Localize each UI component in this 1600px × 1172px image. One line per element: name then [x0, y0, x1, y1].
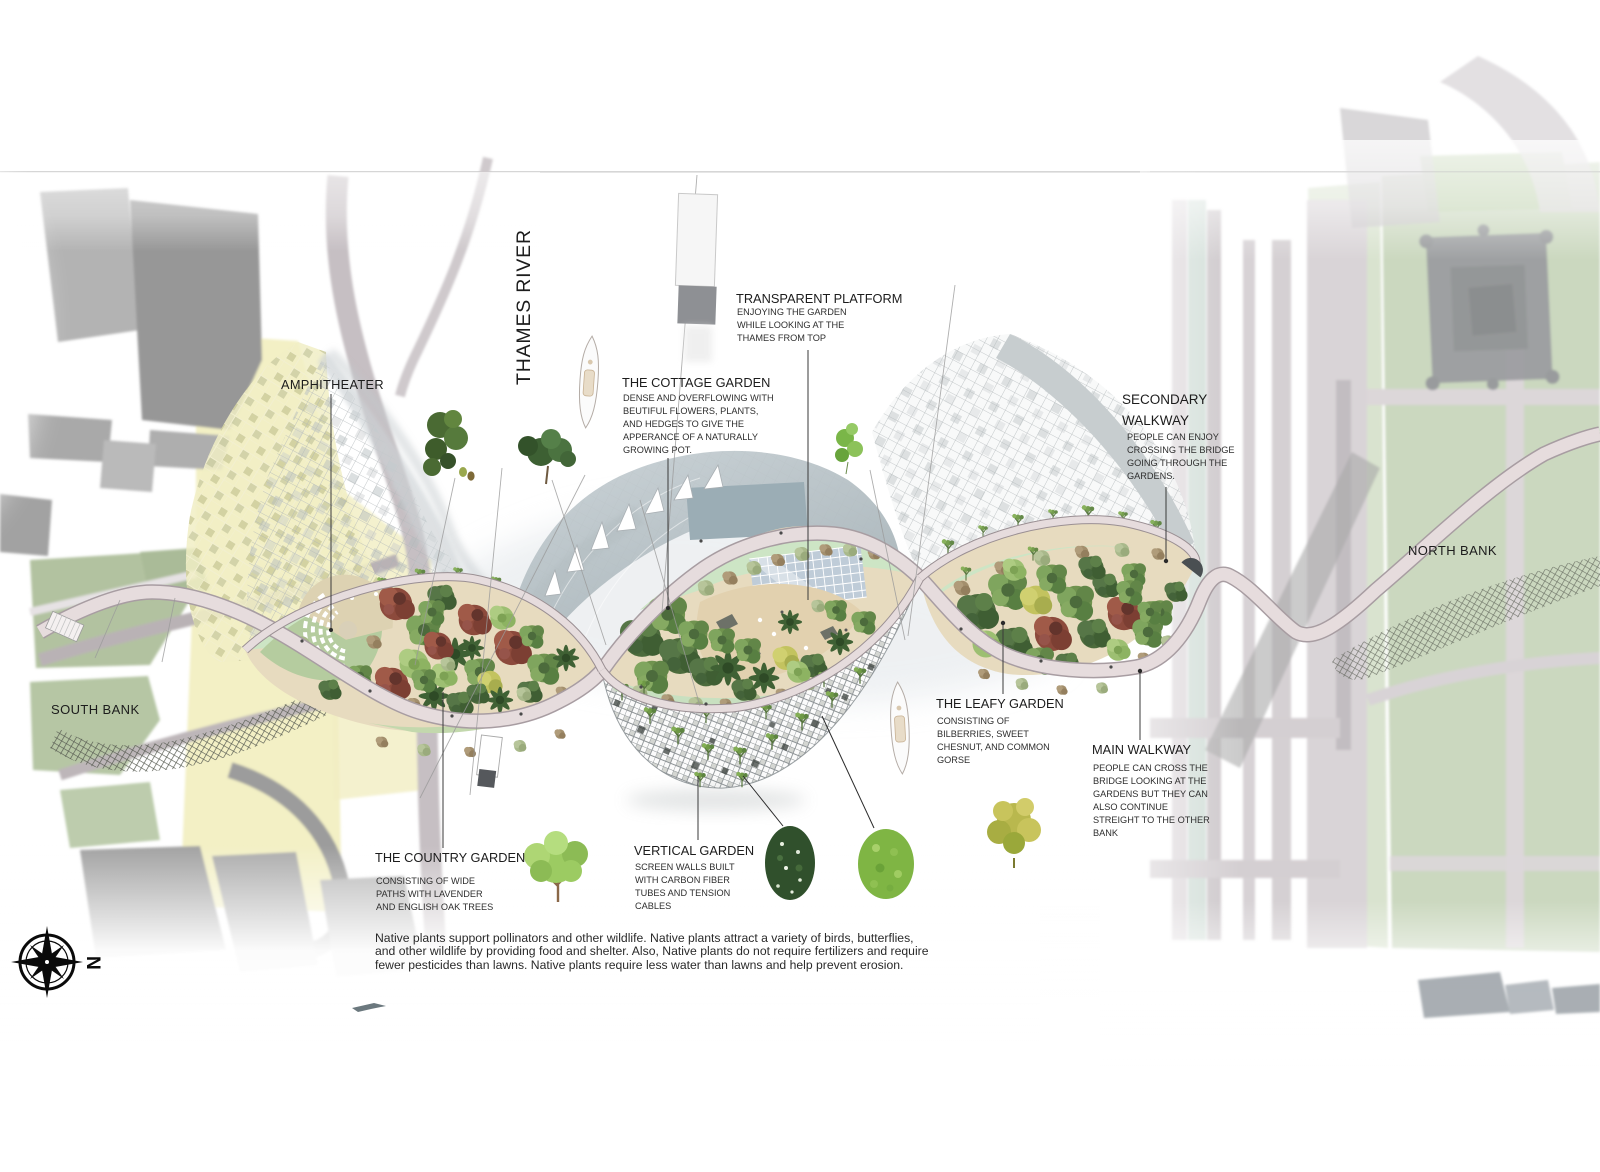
svg-text:CABLES: CABLES — [635, 901, 671, 911]
svg-text:BILBERRIES, SWEET: BILBERRIES, SWEET — [937, 729, 1029, 739]
svg-text:BANK: BANK — [1093, 828, 1119, 838]
svg-text:PEOPLE CAN CROSS THE: PEOPLE CAN CROSS THE — [1093, 763, 1208, 773]
svg-text:WHILE LOOKING AT THE: WHILE LOOKING AT THE — [737, 320, 844, 330]
svg-text:CONSISTING OF WIDE: CONSISTING OF WIDE — [376, 876, 475, 886]
svg-text:fewer pesticides than lawns. N: fewer pesticides than lawns. Native plan… — [375, 958, 903, 972]
svg-text:VERTICAL GARDEN: VERTICAL GARDEN — [634, 843, 754, 858]
svg-text:DENSE AND OVERFLOWING WITH: DENSE AND OVERFLOWING WITH — [623, 393, 774, 403]
svg-text:WITH CARBON FIBER: WITH CARBON FIBER — [635, 875, 730, 885]
svg-text:N: N — [82, 956, 103, 970]
svg-text:SCREEN WALLS BUILT: SCREEN WALLS BUILT — [635, 862, 735, 872]
svg-text:AND HEDGES TO GIVE THE: AND HEDGES TO GIVE THE — [623, 419, 744, 429]
svg-text:and other wildlife by providin: and other wildlife by providing food and… — [375, 944, 929, 958]
svg-text:THE COUNTRY GARDEN: THE COUNTRY GARDEN — [375, 850, 525, 865]
svg-text:SOUTH BANK: SOUTH BANK — [51, 702, 140, 717]
svg-text:PATHS WITH LAVENDER: PATHS WITH LAVENDER — [376, 889, 483, 899]
svg-text:GROWING POT.: GROWING POT. — [623, 445, 692, 455]
svg-text:THAMES RIVER: THAMES RIVER — [513, 229, 535, 385]
svg-text:NORTH BANK: NORTH BANK — [1408, 543, 1497, 558]
svg-text:ENJOYING THE GARDEN: ENJOYING THE GARDEN — [737, 307, 847, 317]
svg-text:THE COTTAGE GARDEN: THE COTTAGE GARDEN — [622, 375, 770, 390]
svg-text:BEUTIFUL FLOWERS, PLANTS,: BEUTIFUL FLOWERS, PLANTS, — [623, 406, 758, 416]
svg-text:THAMES FROM TOP: THAMES FROM TOP — [737, 333, 826, 343]
svg-text:GARDENS BUT THEY CAN: GARDENS BUT THEY CAN — [1093, 789, 1208, 799]
svg-text:MAIN WALKWAY: MAIN WALKWAY — [1092, 742, 1192, 757]
svg-text:GARDENS.: GARDENS. — [1127, 471, 1175, 481]
svg-text:GOING THROUGH THE: GOING THROUGH THE — [1127, 458, 1227, 468]
svg-text:APPERANCE OF A NATURALLY: APPERANCE OF A NATURALLY — [623, 432, 758, 442]
svg-text:THE LEAFY GARDEN: THE LEAFY GARDEN — [936, 696, 1064, 711]
svg-text:BRIDGE LOOKING AT THE: BRIDGE LOOKING AT THE — [1093, 776, 1206, 786]
svg-text:STREIGHT TO THE OTHER: STREIGHT TO THE OTHER — [1093, 815, 1210, 825]
svg-text:SECONDARY: SECONDARY — [1122, 392, 1207, 407]
svg-text:AND ENGLISH OAK TREES: AND ENGLISH OAK TREES — [376, 902, 493, 912]
svg-text:Native plants support pollinat: Native plants support pollinators and ot… — [375, 931, 914, 945]
svg-text:CROSSING THE BRIDGE: CROSSING THE BRIDGE — [1127, 445, 1235, 455]
svg-text:WALKWAY: WALKWAY — [1122, 413, 1189, 428]
svg-text:AMPHITHEATER: AMPHITHEATER — [281, 377, 384, 392]
svg-text:TRANSPARENT PLATFORM: TRANSPARENT PLATFORM — [736, 291, 902, 306]
svg-text:GORSE: GORSE — [937, 755, 970, 765]
svg-text:CHESNUT, AND COMMON: CHESNUT, AND COMMON — [937, 742, 1050, 752]
svg-text:TUBES AND TENSION: TUBES AND TENSION — [635, 888, 730, 898]
svg-text:PEOPLE CAN ENJOY: PEOPLE CAN ENJOY — [1127, 432, 1219, 442]
svg-text:ALSO CONTINUE: ALSO CONTINUE — [1093, 802, 1168, 812]
svg-text:CONSISTING OF: CONSISTING OF — [937, 716, 1010, 726]
